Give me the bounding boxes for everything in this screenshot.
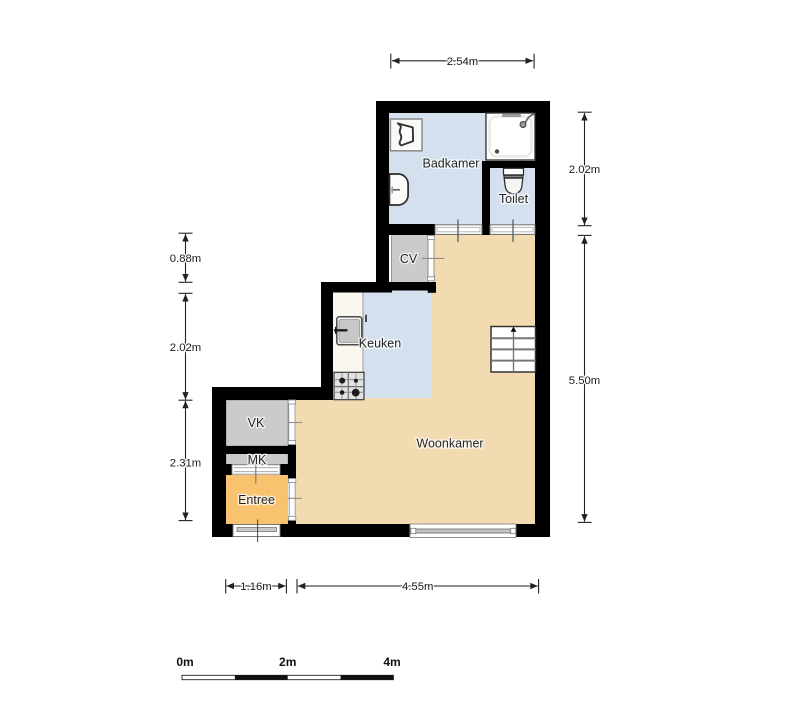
svg-text:0.88m: 0.88m <box>170 253 201 265</box>
svg-text:CV: CV <box>400 252 418 266</box>
svg-text:2.02m: 2.02m <box>170 342 201 354</box>
svg-text:Woonkamer: Woonkamer <box>416 437 483 451</box>
svg-text:MK: MK <box>248 453 267 467</box>
svg-text:Keuken: Keuken <box>359 337 401 351</box>
svg-text:VK: VK <box>248 416 265 430</box>
svg-text:4.55m: 4.55m <box>402 581 433 593</box>
svg-text:5.50m: 5.50m <box>569 375 600 387</box>
svg-text:Toilet: Toilet <box>499 192 529 206</box>
svg-text:2.02m: 2.02m <box>569 164 600 176</box>
svg-text:0m: 0m <box>176 655 193 669</box>
svg-text:4m: 4m <box>383 655 400 669</box>
svg-text:2.31m: 2.31m <box>170 458 201 470</box>
svg-text:2m: 2m <box>279 655 296 669</box>
svg-text:1.16m: 1.16m <box>240 581 271 593</box>
svg-text:2.54m: 2.54m <box>447 56 478 68</box>
svg-text:Entree: Entree <box>238 493 275 507</box>
svg-text:Badkamer: Badkamer <box>423 157 480 171</box>
